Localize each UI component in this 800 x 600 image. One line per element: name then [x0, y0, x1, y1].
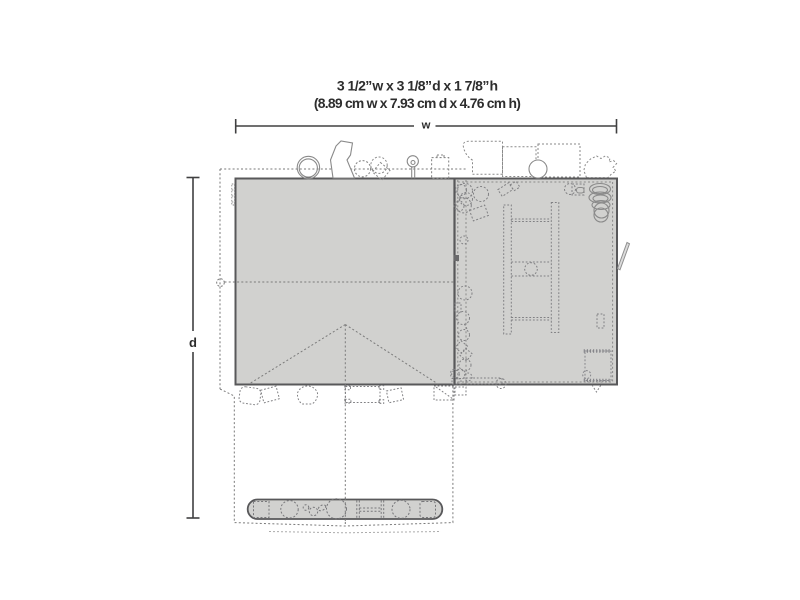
svg-text:d: d — [189, 335, 197, 350]
svg-text:3 1/2” w x 3 1/8” d x 1 7/8” h: 3 1/2” w x 3 1/8” d x 1 7/8” h — [337, 78, 498, 94]
svg-text:(8.89 cm w x 7.93 cm d x 4.76: (8.89 cm w x 7.93 cm d x 4.76 cm h) — [314, 95, 520, 111]
svg-text:w: w — [421, 119, 431, 131]
